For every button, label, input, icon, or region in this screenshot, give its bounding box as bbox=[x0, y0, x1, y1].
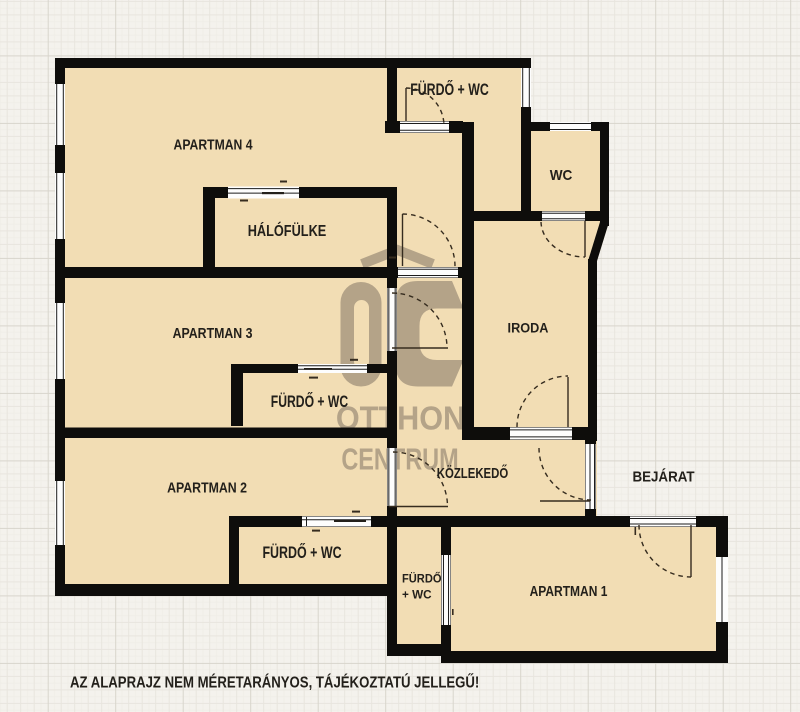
svg-text:BEJÁRAT: BEJÁRAT bbox=[632, 468, 694, 486]
svg-text:+ WC: + WC bbox=[402, 589, 432, 602]
svg-text:FÜRDŐ: FÜRDŐ bbox=[402, 572, 442, 585]
svg-text:HÁLÓFÜLKE: HÁLÓFÜLKE bbox=[248, 221, 327, 241]
svg-text:APARTMAN 2: APARTMAN 2 bbox=[167, 480, 247, 496]
svg-text:FÜRDŐ + WC: FÜRDŐ + WC bbox=[262, 542, 341, 562]
svg-text:WC: WC bbox=[550, 167, 573, 183]
svg-text:FÜRDŐ + WC: FÜRDŐ + WC bbox=[271, 391, 349, 411]
svg-text:AZ ALAPRAJZ NEM MÉRETARÁNYOS,: AZ ALAPRAJZ NEM MÉRETARÁNYOS, TÁJÉKOZTAT… bbox=[70, 673, 479, 692]
svg-text:APARTMAN 3: APARTMAN 3 bbox=[173, 325, 253, 341]
svg-text:KÖZLEKEDŐ: KÖZLEKEDŐ bbox=[437, 465, 508, 482]
svg-text:APARTMAN 4: APARTMAN 4 bbox=[174, 136, 253, 152]
svg-text:IRODA: IRODA bbox=[508, 320, 549, 336]
svg-text:FÜRDŐ + WC: FÜRDŐ + WC bbox=[410, 79, 489, 99]
svg-text:APARTMAN 1: APARTMAN 1 bbox=[530, 583, 608, 599]
